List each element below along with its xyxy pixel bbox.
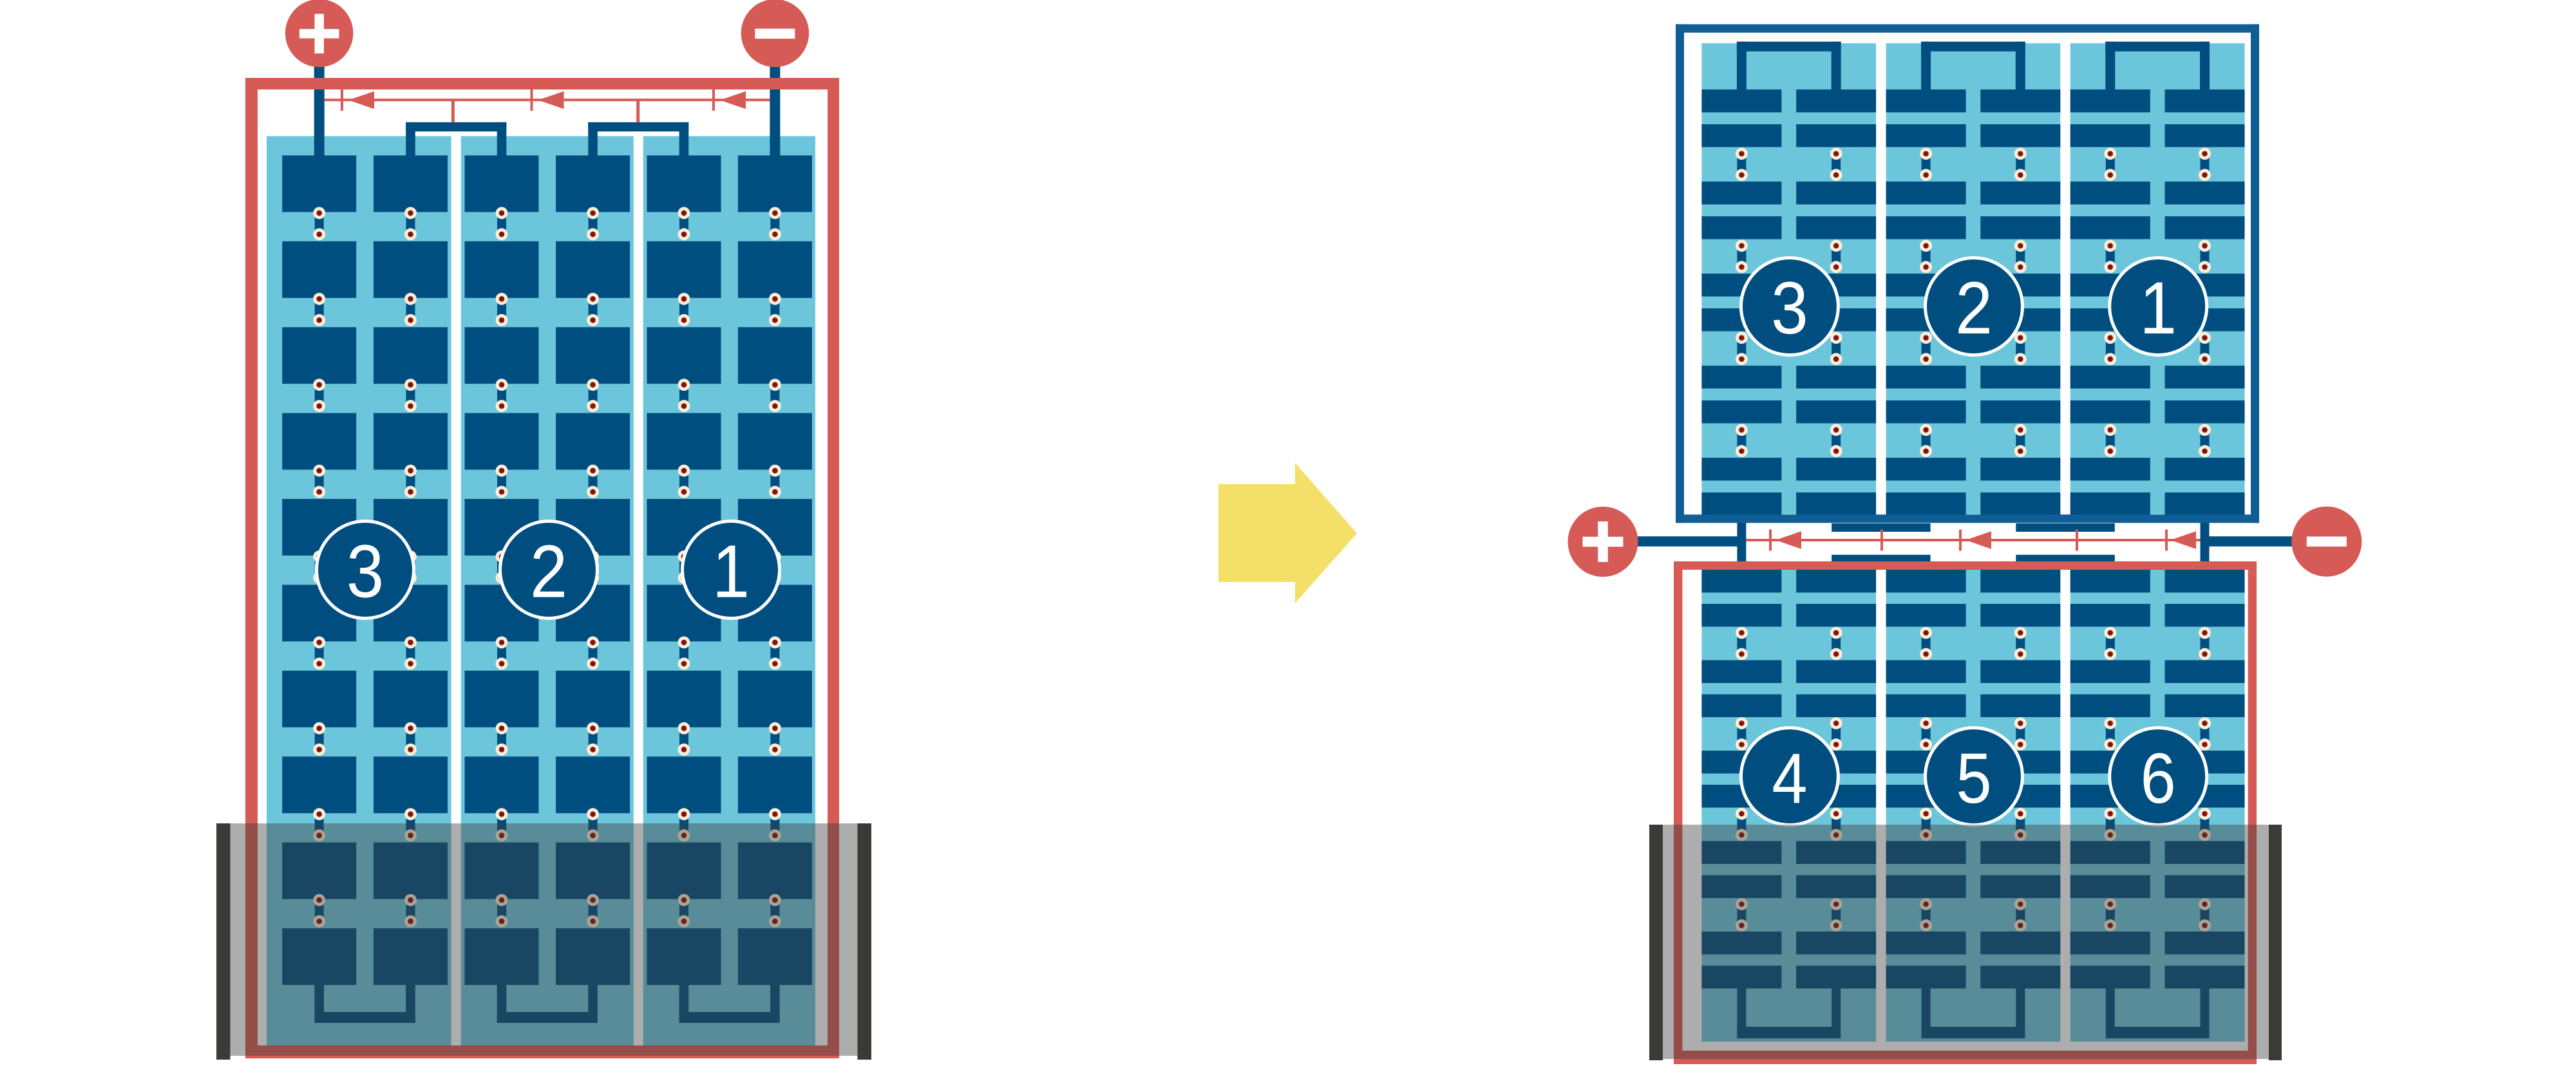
svg-text:2: 2 [1955,267,1993,350]
svg-text:4: 4 [1772,739,1807,818]
svg-text:5: 5 [1956,739,1991,818]
svg-text:6: 6 [2141,739,2176,818]
svg-text:2: 2 [530,530,567,613]
svg-text:3: 3 [346,530,384,613]
svg-text:1: 1 [712,530,750,613]
svg-text:3: 3 [1771,267,1808,350]
svg-text:1: 1 [2139,267,2177,350]
